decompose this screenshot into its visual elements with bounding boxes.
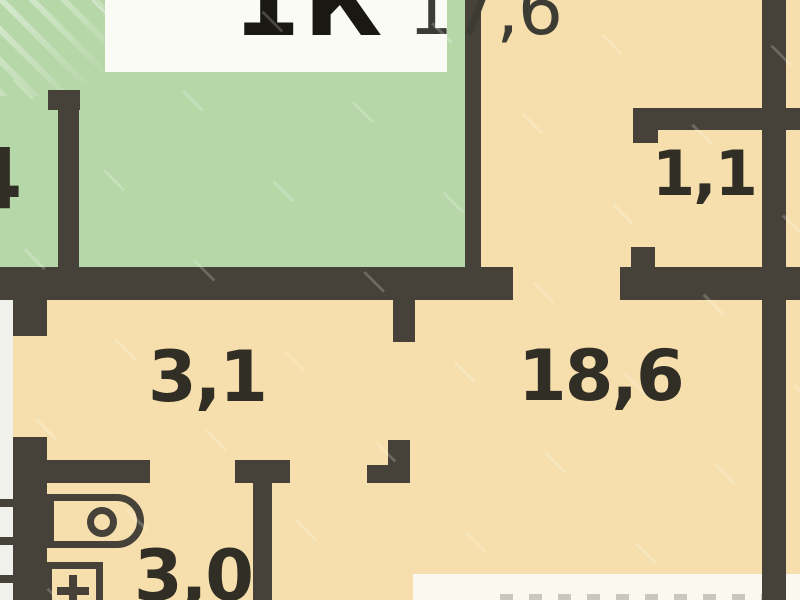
outside-left-strip bbox=[0, 300, 13, 600]
room-label-hallway: 3,1 bbox=[148, 342, 266, 412]
wall-entry-block-top bbox=[13, 300, 47, 336]
floor-plan: 1К 17,6 4 1,1 3,1 18,6 3,0 bbox=[0, 0, 800, 600]
toilet-drain-icon bbox=[87, 507, 117, 537]
room-label-neighbor: 4 bbox=[0, 137, 20, 221]
wall-bath-right bbox=[253, 483, 272, 600]
wall-hall-stub bbox=[393, 300, 415, 342]
room-label-main-room: 18,6 bbox=[518, 341, 683, 411]
wall-green-divider-cap bbox=[48, 90, 80, 110]
unit-area: 17,6 bbox=[408, 0, 562, 45]
room-label-closet: 1,1 bbox=[652, 143, 756, 205]
wall-green-divider bbox=[58, 90, 79, 267]
cutoff-marks bbox=[500, 594, 790, 600]
wall-hall-top-left bbox=[0, 267, 513, 300]
wall-bath-top-right bbox=[235, 460, 290, 483]
wall-closet-top bbox=[633, 108, 800, 130]
washbasin-cross-icon bbox=[69, 575, 77, 600]
wall-bath-top-left bbox=[47, 460, 150, 483]
wall-right-outer bbox=[762, 0, 786, 600]
wall-closet-door-jamb bbox=[631, 247, 655, 269]
wall-entry-block-bottom bbox=[13, 437, 47, 600]
title-label-box: 1К 17,6 bbox=[105, 0, 447, 72]
wall-door-corner-foot bbox=[367, 465, 410, 483]
balcony-hatch-pattern bbox=[0, 0, 118, 96]
room-label-bathroom: 3,0 bbox=[134, 541, 252, 600]
unit-number: 1К bbox=[233, 0, 386, 50]
